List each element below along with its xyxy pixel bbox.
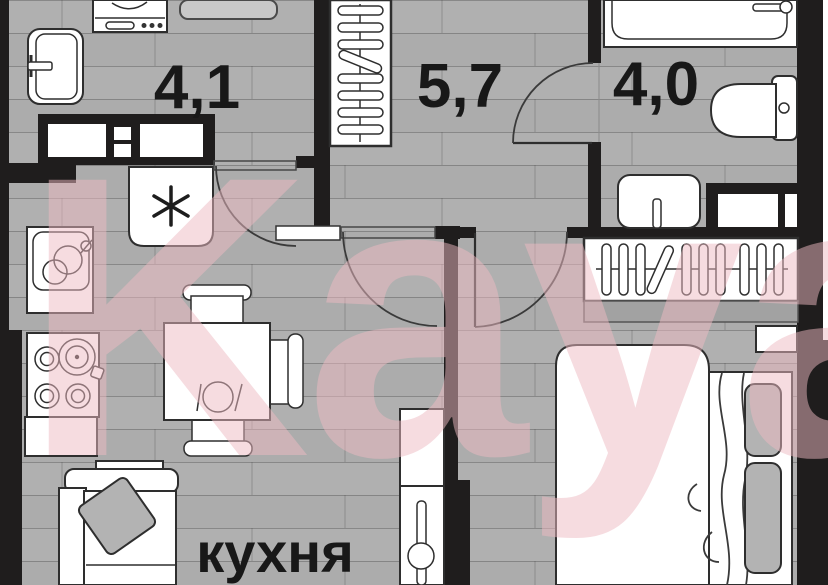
watermark-text: Kayan bbox=[22, 93, 828, 543]
wall-left-bottom bbox=[0, 330, 22, 585]
wall-hall-bath-top bbox=[588, 0, 601, 63]
floor-plan-canvas: 4,1 5,7 4,0 кухня Kayan bbox=[0, 0, 828, 585]
floor-plan: 4,1 5,7 4,0 кухня Kayan bbox=[0, 0, 828, 585]
water-heater bbox=[180, 0, 277, 19]
washing-machine bbox=[93, 0, 167, 32]
bathtub bbox=[604, 0, 797, 47]
